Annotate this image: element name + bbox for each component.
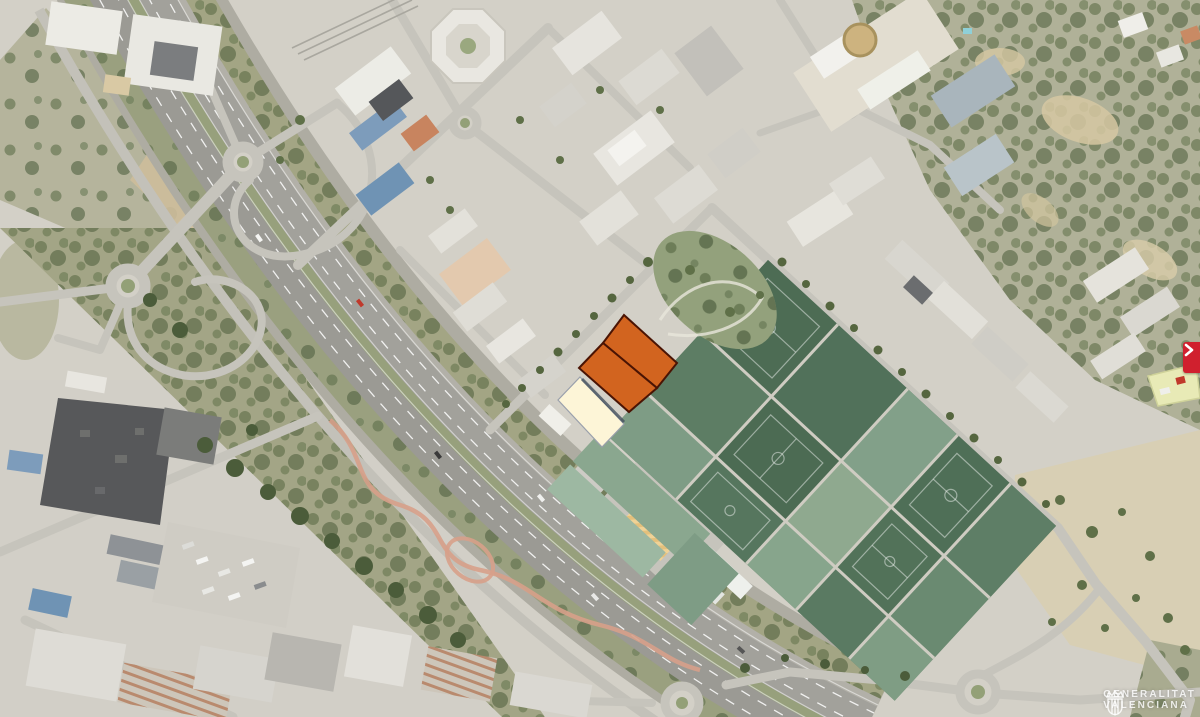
map-viewport[interactable]: GENERALITAT VALENCIANA [0,0,1200,717]
chevron-right-icon [1183,342,1195,358]
generalitat-coat-of-arms-icon [1103,689,1127,717]
panel-toggle-button[interactable] [1183,342,1200,373]
generalitat-valenciana-watermark: GENERALITAT VALENCIANA [1103,689,1196,711]
large-warehouse [40,398,175,525]
aerial-map-canvas[interactable] [0,0,1200,717]
